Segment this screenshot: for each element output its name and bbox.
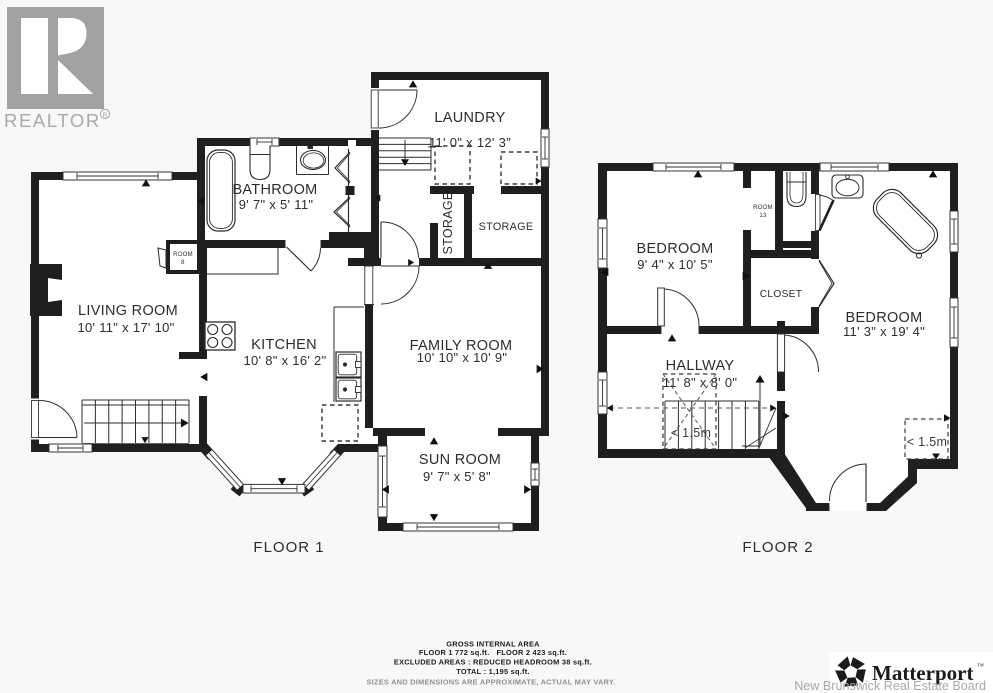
svg-text:10' 10" x 10' 9": 10' 10" x 10' 9" [417, 350, 508, 365]
svg-text:9' 4" x 10' 5": 9' 4" x 10' 5" [637, 257, 713, 272]
svg-text:STORAGE: STORAGE [479, 221, 534, 233]
svg-text:KITCHEN: KITCHEN [251, 337, 317, 353]
svg-text:< 1.5m: < 1.5m [907, 435, 947, 449]
svg-text:11' 3" x 19' 4": 11' 3" x 19' 4" [843, 324, 925, 339]
svg-text:11' 0" x 12' 3": 11' 0" x 12' 3" [429, 135, 511, 150]
svg-text:ROOM: ROOM [753, 205, 773, 211]
svg-text:FLOOR 1 772 sq.ft. FLOOR 2 4: FLOOR 1 772 sq.ft. FLOOR 2 423 sq.ft. [419, 648, 567, 657]
svg-text:9' 7" x 5' 8": 9' 7" x 5' 8" [423, 469, 491, 484]
svg-text:HALLWAY: HALLWAY [666, 358, 735, 374]
svg-text:10' 8" x 16' 2": 10' 8" x 16' 2" [243, 353, 326, 368]
svg-text:13: 13 [759, 213, 767, 219]
svg-text:BATHROOM: BATHROOM [232, 182, 317, 198]
svg-text:ROOM: ROOM [173, 252, 193, 258]
svg-text:9' 7" x 5' 11": 9' 7" x 5' 11" [239, 197, 314, 212]
svg-text:New Brunswick Real Estate Boar: New Brunswick Real Estate Board [794, 679, 986, 693]
svg-text:10' 11" x 17' 10": 10' 11" x 17' 10" [77, 320, 174, 335]
svg-text:BEDROOM: BEDROOM [636, 241, 713, 257]
svg-text:EXCLUDED AREAS : REDUCED HEAD: EXCLUDED AREAS : REDUCED HEADROOM 38 sq.… [394, 658, 592, 667]
svg-text:8: 8 [181, 260, 185, 266]
svg-text:11' 8" x 8' 0": 11' 8" x 8' 0" [663, 375, 738, 390]
svg-text:R: R [103, 112, 108, 119]
svg-text:TOTAL : 1,195 sq.ft.: TOTAL : 1,195 sq.ft. [456, 667, 530, 676]
svg-text:CLOSET: CLOSET [760, 289, 803, 300]
svg-text:™: ™ [977, 662, 984, 670]
svg-text:STORAGE: STORAGE [441, 192, 455, 255]
svg-text:< 1.5m: < 1.5m [671, 426, 711, 440]
svg-text:REALTOR: REALTOR [4, 110, 101, 131]
svg-text:FLOOR 2: FLOOR 2 [742, 539, 813, 556]
svg-text:SIZES AND DIMENSIONS ARE APPRO: SIZES AND DIMENSIONS ARE APPROXIMATE, AC… [366, 678, 615, 687]
svg-text:SUN ROOM: SUN ROOM [419, 452, 501, 468]
svg-text:LIVING ROOM: LIVING ROOM [78, 303, 178, 319]
svg-text:FLOOR 1: FLOOR 1 [253, 539, 324, 556]
svg-text:LAUNDRY: LAUNDRY [434, 110, 505, 126]
